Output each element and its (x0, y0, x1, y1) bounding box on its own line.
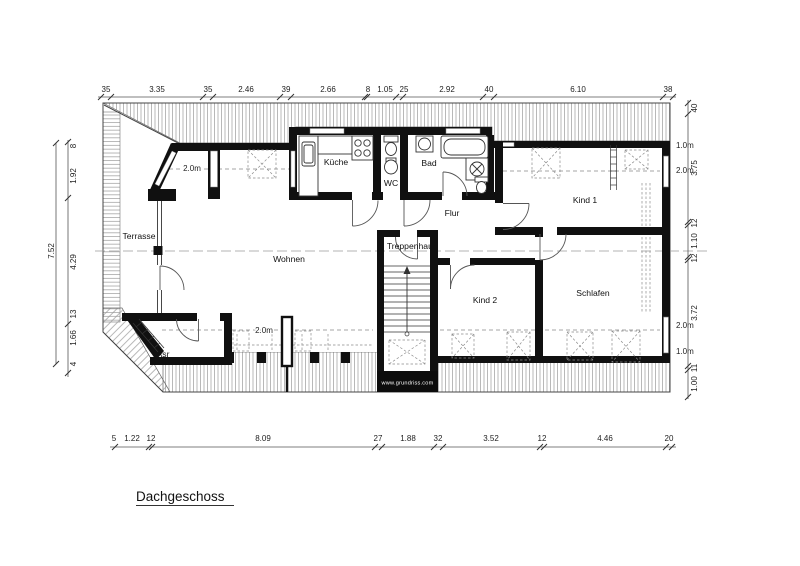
room-label-kind1: Kind 1 (573, 195, 598, 205)
dimension-chain-top: 35 3.35 35 2.46 39 2.66 8 1.05 25 2.92 4… (98, 85, 676, 100)
toilet-tank (384, 136, 398, 142)
svg-text:3.72: 3.72 (690, 305, 699, 321)
room-label-wc: WC (384, 178, 398, 188)
svg-text:4.46: 4.46 (597, 434, 613, 443)
dimension-chain-bottom: 5 1.22 12 8.09 27 1.88 32 3.52 12 4.46 2… (110, 434, 676, 450)
height-label-right-4: 1.0m (676, 347, 694, 356)
svg-text:3.75: 3.75 (690, 160, 699, 176)
drawing-title: Dachgeschoss (136, 489, 234, 506)
floor-plan-page: www.grundriss.com (0, 0, 800, 566)
floor-plan-drawing: www.grundriss.com (0, 0, 800, 566)
room-label-flur: Flur (445, 208, 460, 218)
room-label-kueche: Küche (324, 157, 349, 167)
room-label-bad: Bad (421, 158, 437, 168)
room-label-kind2: Kind 2 (473, 295, 498, 305)
room-label-treppenhaus: Treppenhaus (387, 241, 437, 251)
svg-text:12: 12 (538, 434, 547, 443)
svg-text:25: 25 (400, 85, 409, 94)
svg-text:1.22: 1.22 (124, 434, 140, 443)
dimension-chain-left: 8 1.92 4.29 13 1.66 4 7.52 (47, 139, 78, 377)
svg-text:3.52: 3.52 (483, 434, 499, 443)
svg-text:11: 11 (690, 363, 699, 372)
svg-text:4.29: 4.29 (69, 254, 78, 270)
svg-text:3.35: 3.35 (149, 85, 165, 94)
svg-text:6.10: 6.10 (570, 85, 586, 94)
svg-text:32: 32 (434, 434, 443, 443)
dimension-left-overall: 7.52 (47, 243, 56, 259)
toilet (386, 143, 397, 156)
svg-text:20: 20 (665, 434, 674, 443)
terrace-glazing (154, 201, 163, 313)
svg-text:27: 27 (374, 434, 383, 443)
svg-text:40: 40 (690, 103, 699, 112)
svg-text:8: 8 (69, 143, 78, 148)
svg-text:12: 12 (147, 434, 156, 443)
svg-text:8.09: 8.09 (255, 434, 271, 443)
svg-text:1.00: 1.00 (690, 376, 699, 392)
height-label-alcove: 2.0m (183, 164, 201, 173)
room-label-terrasse: Terrasse (123, 231, 156, 241)
svg-text:1.10: 1.10 (690, 233, 699, 249)
page-title: Dachgeschoss (136, 489, 225, 504)
svg-text:40: 40 (485, 85, 494, 94)
room-label-asr: Asr (157, 349, 170, 359)
svg-text:38: 38 (664, 85, 673, 94)
svg-text:13: 13 (69, 309, 78, 318)
svg-text:35: 35 (102, 85, 111, 94)
room-label-schlafen: Schlafen (576, 288, 610, 298)
svg-text:12: 12 (690, 218, 699, 227)
height-label-bottom: 2.0m (255, 326, 273, 335)
kitchen-counter (318, 136, 352, 154)
room-label-wohnen: Wohnen (273, 254, 305, 264)
svg-text:1.92: 1.92 (69, 168, 78, 184)
svg-text:2.92: 2.92 (439, 85, 455, 94)
sink (385, 160, 398, 174)
terrace-edge-hatch (103, 112, 120, 322)
svg-text:2.46: 2.46 (238, 85, 254, 94)
svg-text:35: 35 (204, 85, 213, 94)
height-label-right-1: 1.0m (676, 141, 694, 150)
chimney-post (282, 317, 292, 366)
watermark-text: www.grundriss.com (381, 381, 434, 387)
svg-text:1.05: 1.05 (377, 85, 393, 94)
svg-text:1.66: 1.66 (69, 330, 78, 346)
svg-text:4: 4 (69, 361, 78, 366)
stove (352, 136, 373, 160)
height-label-right-3: 2.0m (676, 321, 694, 330)
svg-text:12: 12 (690, 253, 699, 262)
svg-text:8: 8 (366, 85, 371, 94)
svg-text:39: 39 (282, 85, 291, 94)
svg-text:1.88: 1.88 (400, 434, 416, 443)
svg-text:5: 5 (112, 434, 117, 443)
toilet (477, 182, 487, 194)
svg-text:2.66: 2.66 (320, 85, 336, 94)
